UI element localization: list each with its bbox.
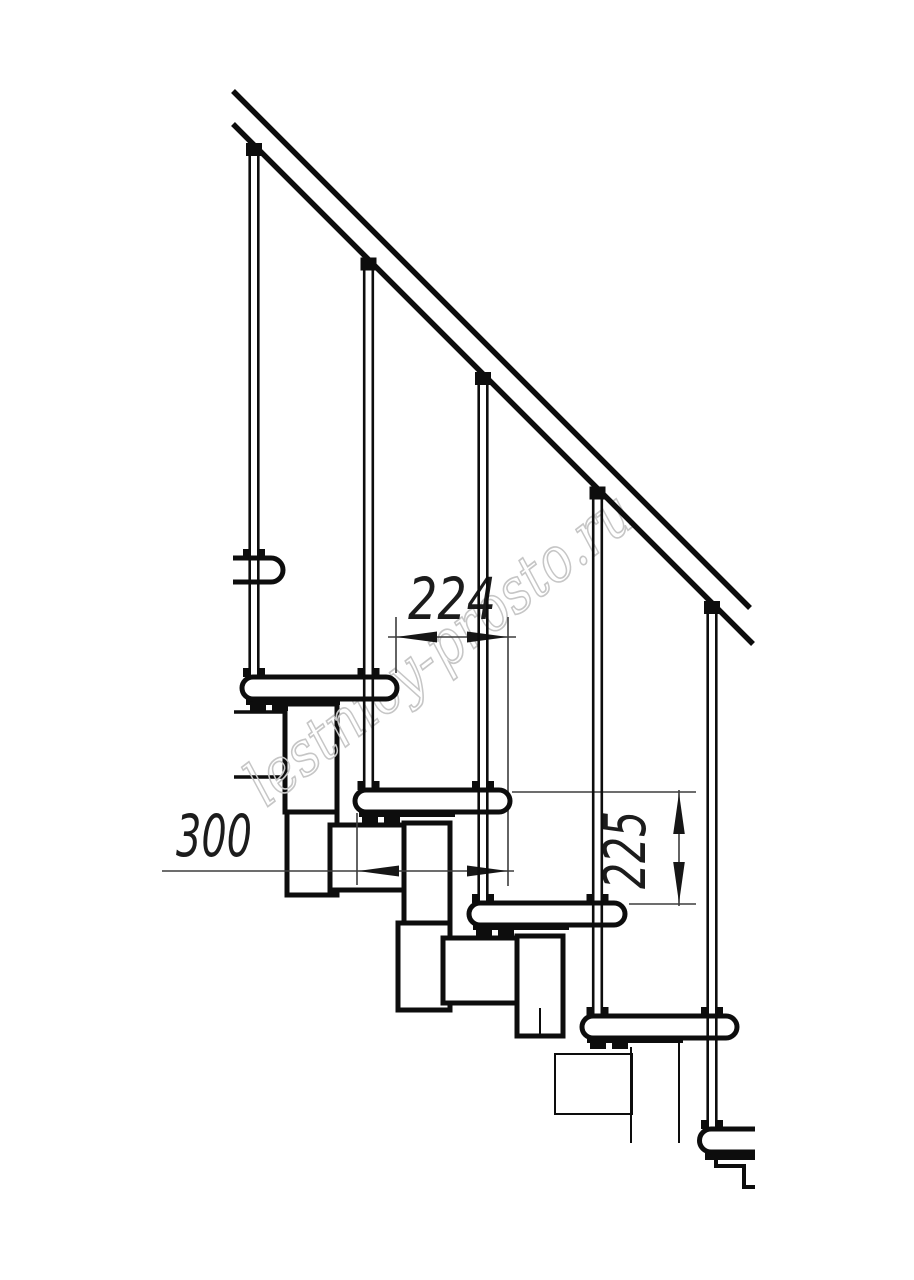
arrow-down-icon: [673, 862, 685, 903]
bracket-nub: [272, 705, 288, 711]
handrail-top-line: [233, 91, 750, 608]
baluster-rod: [250, 154, 259, 677]
rail-fastener: [475, 372, 491, 385]
baluster-rod: [593, 498, 602, 1017]
bracket-nub: [498, 930, 514, 936]
module-profile-lines: [631, 1042, 679, 1143]
baluster-rod: [708, 612, 717, 1129]
rail-fastener: [361, 258, 377, 271]
arrow-up-icon: [673, 793, 685, 834]
baluster-1: [243, 143, 265, 677]
bracket-nub: [362, 817, 378, 823]
technical-drawing-canvas: lestnicy-prosto.ru 224 300 225: [0, 0, 914, 1280]
watermark-text: lestnicy-prosto.ru: [231, 476, 648, 820]
bracket-nub: [384, 817, 400, 823]
dimension-run-label: 224: [408, 565, 496, 633]
tread-5: [582, 1016, 737, 1038]
baluster-5: [701, 601, 723, 1129]
bracket-nub: [612, 1043, 628, 1049]
tread-6-partial: [700, 1129, 756, 1152]
dimension-rise-225: 225: [512, 790, 696, 906]
module-box-thin: [555, 1054, 632, 1114]
bracket-nub: [250, 705, 266, 711]
dimension-depth-label: 300: [176, 802, 252, 870]
staircase-drawing: lestnicy-prosto.ru 224 300 225: [0, 0, 914, 1280]
module-box: [330, 825, 407, 890]
module-column: [404, 823, 450, 923]
bracket-nub: [476, 930, 492, 936]
bottom-step-profile: [716, 1160, 755, 1187]
module-box: [443, 938, 520, 1003]
bracket-nub: [590, 1043, 606, 1049]
